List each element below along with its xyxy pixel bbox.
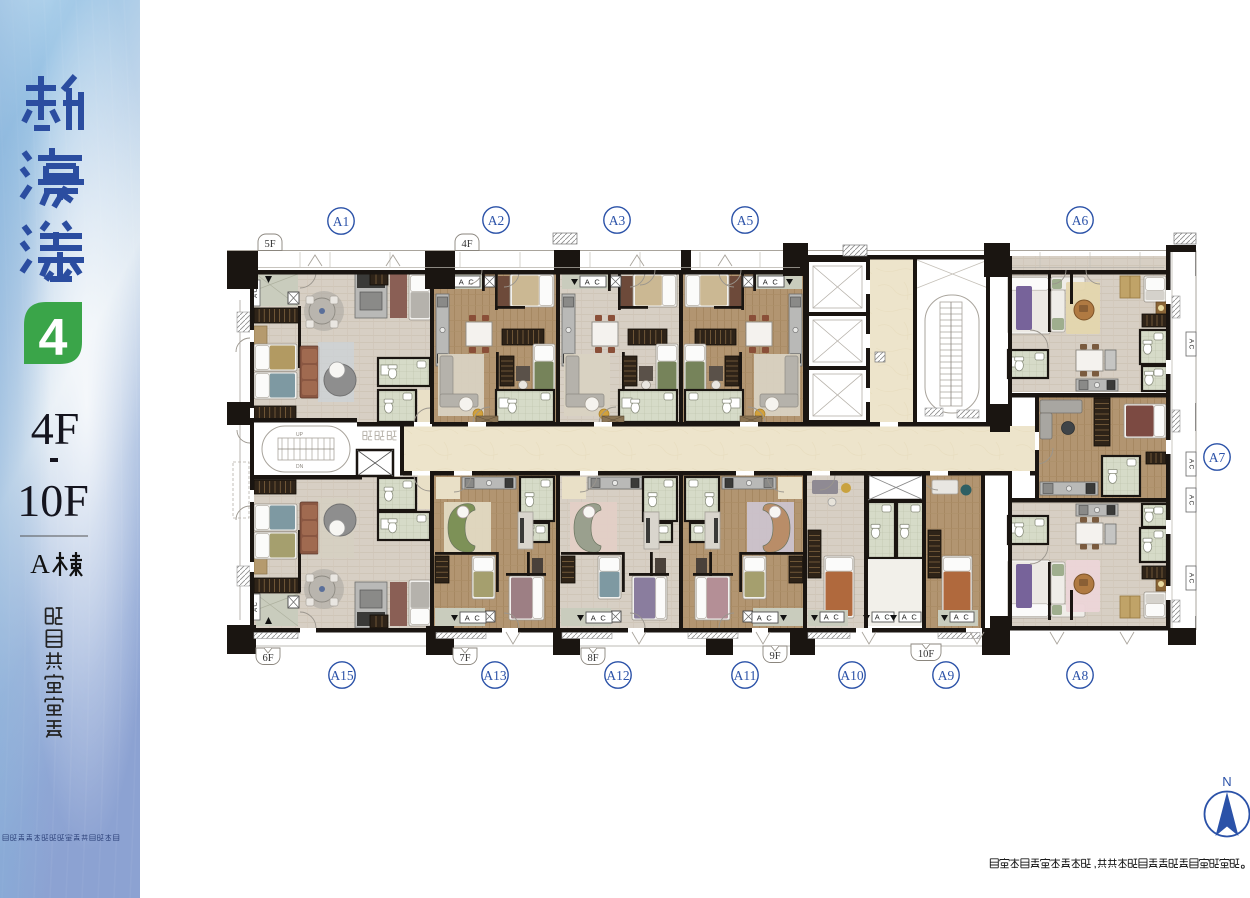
svg-text:4F: 4F bbox=[31, 403, 80, 454]
svg-text:A: A bbox=[30, 549, 50, 579]
svg-text:A C: A C bbox=[954, 612, 971, 621]
svg-text:9F: 9F bbox=[769, 651, 780, 662]
svg-text:UP: UP bbox=[296, 432, 304, 438]
svg-text:A C: A C bbox=[824, 612, 841, 621]
svg-text:A7: A7 bbox=[1209, 450, 1226, 465]
svg-text:A C: A C bbox=[459, 277, 476, 286]
svg-text:A C: A C bbox=[1187, 495, 1194, 506]
svg-text:A10: A10 bbox=[840, 668, 863, 683]
svg-text:4: 4 bbox=[39, 309, 68, 367]
svg-text:A C: A C bbox=[1187, 573, 1194, 584]
svg-text:A1: A1 bbox=[333, 214, 350, 229]
svg-text:A C: A C bbox=[875, 612, 892, 621]
svg-text:A9: A9 bbox=[938, 668, 955, 683]
svg-text:A2: A2 bbox=[488, 213, 505, 228]
svg-text:A C: A C bbox=[465, 613, 482, 622]
svg-text:5F: 5F bbox=[264, 239, 275, 250]
svg-text:A C: A C bbox=[1187, 339, 1194, 350]
svg-text:N: N bbox=[1222, 774, 1231, 789]
svg-text:A C: A C bbox=[585, 277, 602, 286]
svg-text:10F: 10F bbox=[17, 475, 89, 526]
svg-text:A12: A12 bbox=[606, 668, 629, 683]
svg-text:A3: A3 bbox=[609, 213, 626, 228]
svg-text:A C: A C bbox=[1187, 459, 1194, 470]
svg-text:DN: DN bbox=[296, 464, 304, 470]
svg-text:4F: 4F bbox=[461, 239, 472, 250]
svg-text:A13: A13 bbox=[483, 668, 506, 683]
svg-text:6F: 6F bbox=[262, 653, 273, 664]
svg-text:A8: A8 bbox=[1072, 668, 1089, 683]
svg-text:A C: A C bbox=[757, 613, 774, 622]
svg-text:7F: 7F bbox=[459, 653, 470, 664]
svg-text:A11: A11 bbox=[734, 668, 757, 683]
svg-text:A C: A C bbox=[902, 612, 919, 621]
svg-text:A15: A15 bbox=[330, 668, 353, 683]
svg-text:A5: A5 bbox=[737, 213, 754, 228]
svg-text:8F: 8F bbox=[587, 653, 598, 664]
svg-text:A6: A6 bbox=[1072, 213, 1089, 228]
svg-text:A C: A C bbox=[591, 613, 608, 622]
svg-text:A C: A C bbox=[763, 277, 780, 286]
svg-text:10F: 10F bbox=[918, 649, 935, 660]
